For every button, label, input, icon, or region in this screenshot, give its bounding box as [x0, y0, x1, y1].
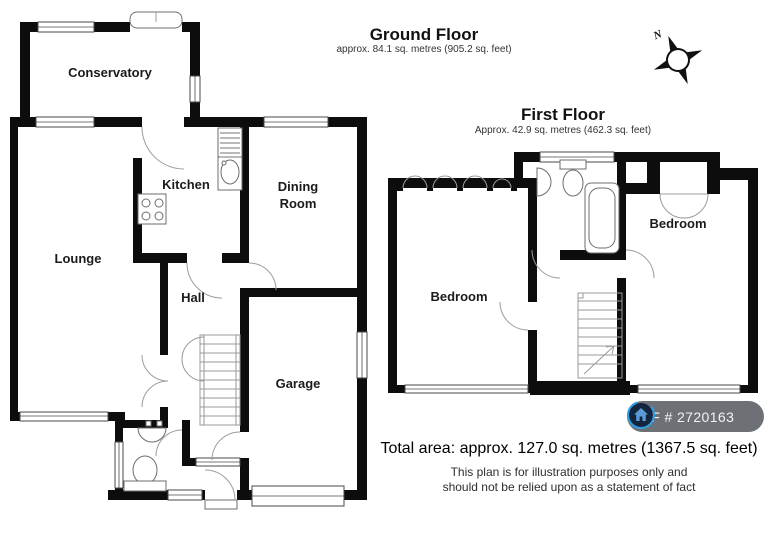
first-floor-plan: BedroomBedroom: [388, 152, 758, 395]
compass-icon: N: [644, 26, 712, 94]
room-label: Garage: [276, 376, 321, 391]
disclaimer-line-2: should not be relied upon as a statement…: [443, 480, 696, 494]
ground-floor-plan: ConservatoryKitchenDiningRoomLoungeHallG…: [10, 12, 367, 509]
room-label: Lounge: [55, 251, 102, 266]
first-floor-title: First Floor: [521, 105, 605, 124]
ground-floor-stairs: [200, 335, 240, 425]
compass-north-label: N: [651, 28, 665, 43]
room-label: Kitchen: [162, 177, 210, 192]
room-label: Dining: [278, 179, 318, 194]
room-label: Bedroom: [430, 289, 487, 304]
bathroom-basin: [537, 168, 551, 196]
ground_floor-labels: ConservatoryKitchenDiningRoomLoungeHallG…: [55, 65, 321, 391]
wc-toilet: [133, 456, 157, 484]
floorplan-page: ConservatoryKitchenDiningRoomLoungeHallG…: [0, 0, 768, 537]
disclaimer-line-1: This plan is for illustration purposes o…: [451, 465, 688, 479]
total-area-text: Total area: approx. 127.0 sq. metres (13…: [380, 440, 757, 457]
ref-badge: REF # 2720163: [627, 401, 764, 432]
first-floor-stairs: [578, 293, 622, 378]
room-label: Room: [280, 196, 317, 211]
front-step: [205, 500, 237, 509]
room-label: Bedroom: [649, 216, 706, 231]
first-floor-fixtures: [537, 160, 619, 253]
floorplan-drawing: ConservatoryKitchenDiningRoomLoungeHallG…: [0, 0, 768, 537]
ground-floor-title: Ground Floor: [370, 25, 479, 44]
toilet-cistern: [560, 160, 586, 169]
first-floor-subtitle: Approx. 42.9 sq. metres (462.3 sq. feet): [475, 125, 651, 136]
bathroom-toilet: [563, 170, 583, 196]
first-floor-doors: [403, 176, 708, 330]
room-label: Hall: [181, 290, 205, 305]
home-icon: [627, 401, 655, 429]
room-label: Conservatory: [68, 65, 153, 80]
ground-floor-subtitle: approx. 84.1 sq. metres (905.2 sq. feet): [336, 44, 511, 55]
